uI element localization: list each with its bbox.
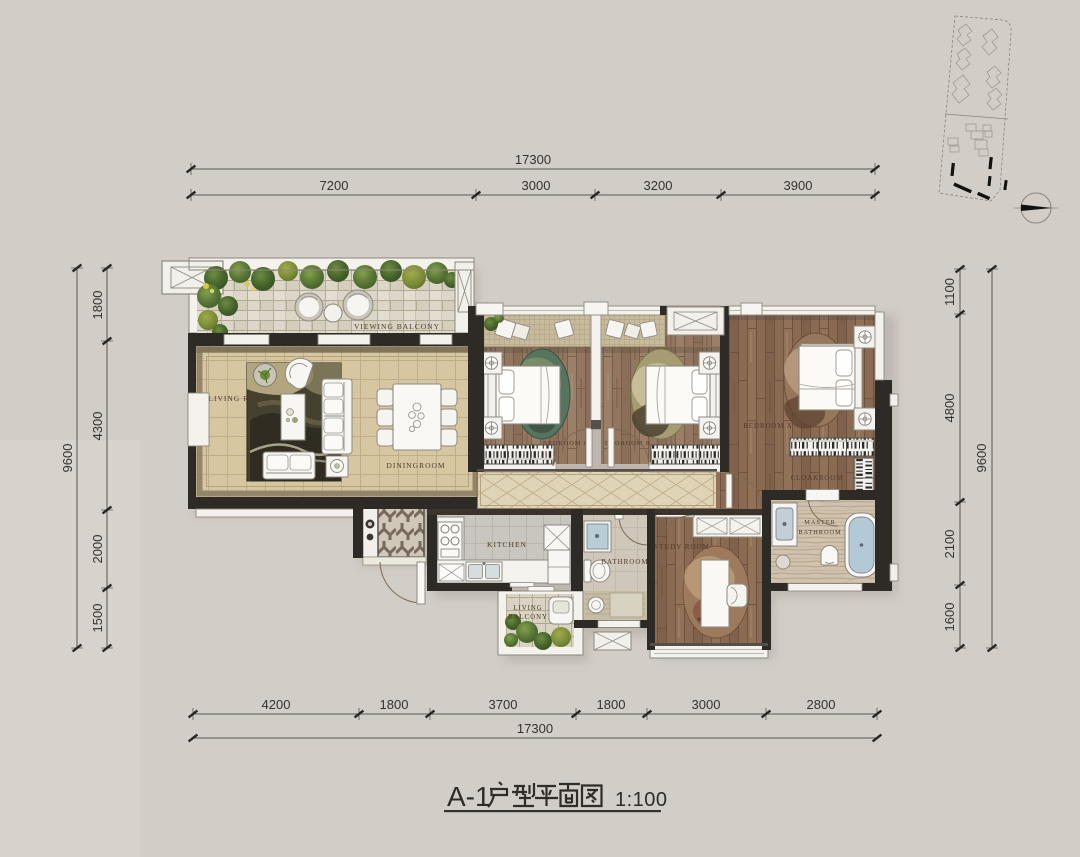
svg-text:9600: 9600 (974, 444, 989, 473)
svg-text:A-1: A-1 (447, 781, 491, 812)
svg-text:2800: 2800 (807, 697, 836, 712)
svg-text:1800: 1800 (380, 697, 409, 712)
svg-text:1800: 1800 (597, 697, 626, 712)
svg-text:3200: 3200 (644, 178, 673, 193)
svg-text:7200: 7200 (320, 178, 349, 193)
svg-text:BATHROOM: BATHROOM (601, 558, 648, 566)
svg-text:2000: 2000 (90, 535, 105, 564)
svg-text:LIVING: LIVING (513, 605, 542, 612)
svg-text:1500: 1500 (90, 604, 105, 633)
svg-text:CLOAKROOM: CLOAKROOM (791, 475, 844, 482)
svg-text:4200: 4200 (262, 697, 291, 712)
svg-text:KITCHEN: KITCHEN (487, 540, 527, 549)
svg-text:LIVING ROOM: LIVING ROOM (208, 394, 269, 403)
svg-text:17300: 17300 (517, 721, 553, 736)
svg-text:BEDROOM C: BEDROOM C (543, 440, 589, 447)
svg-text:VIEWING BALCONY: VIEWING BALCONY (354, 322, 440, 331)
svg-text:BEDROOM A: BEDROOM A (743, 423, 792, 430)
svg-text:1600: 1600 (942, 603, 957, 632)
svg-text:BATHROOM: BATHROOM (798, 529, 841, 536)
svg-text:3900: 3900 (784, 178, 813, 193)
svg-text:4300: 4300 (90, 412, 105, 441)
svg-text:1100: 1100 (942, 278, 957, 306)
svg-text:3700: 3700 (489, 697, 518, 712)
svg-text:3000: 3000 (692, 697, 721, 712)
svg-text:DININGROOM: DININGROOM (386, 461, 445, 470)
svg-text:BALCONY: BALCONY (508, 614, 548, 621)
svg-text:1800: 1800 (90, 291, 105, 320)
svg-text:3000: 3000 (522, 178, 551, 193)
svg-text:1:100: 1:100 (615, 789, 668, 811)
svg-text:9600: 9600 (60, 444, 75, 473)
svg-text:4800: 4800 (942, 394, 957, 423)
svg-text:17300: 17300 (515, 152, 551, 167)
svg-text:STUDY ROOM: STUDY ROOM (654, 543, 710, 551)
svg-text:2100: 2100 (942, 530, 957, 559)
